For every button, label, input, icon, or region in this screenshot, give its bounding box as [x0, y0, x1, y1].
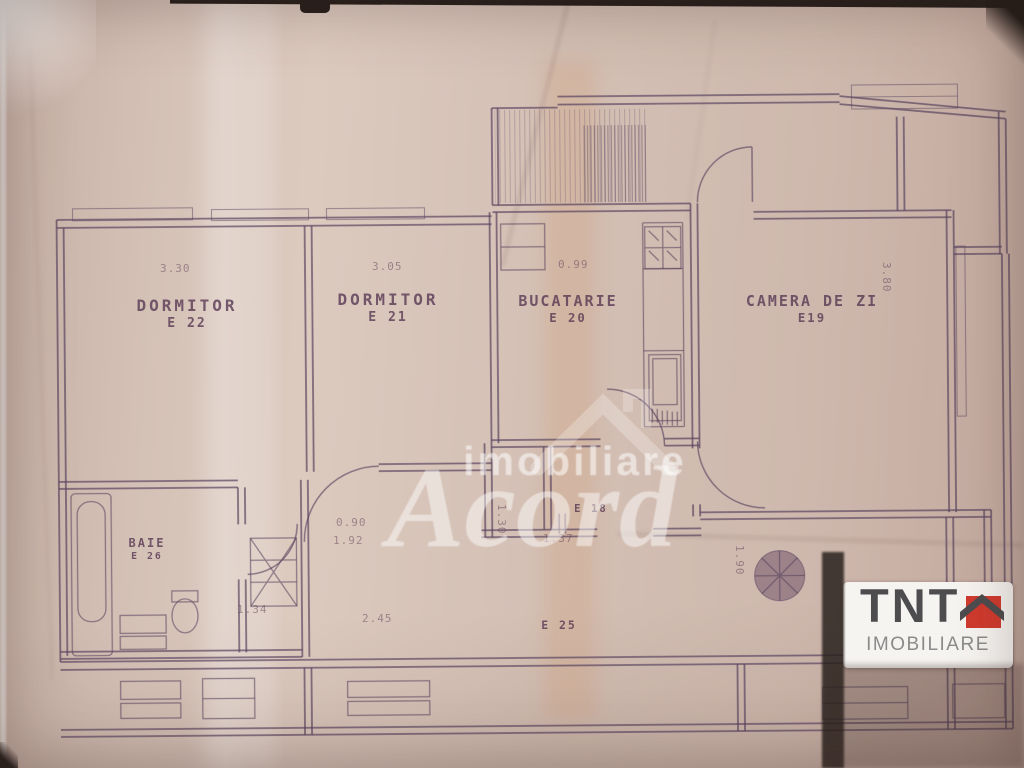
room-code: E 20: [498, 311, 638, 326]
room-code: E 26: [112, 551, 182, 563]
room-label-baie-e26: BAIE E 26: [112, 536, 182, 563]
room-code: E19: [722, 311, 902, 326]
photo-edge-left: [0, 0, 6, 768]
photo-shade-bottom-right: [826, 664, 1024, 768]
dimension-label: 3.05: [372, 260, 403, 273]
sink-cabinet-icon: [120, 615, 166, 633]
room-label-camera-de-zi-e19: CAMERA DE ZI E19: [722, 292, 902, 326]
balcony-hatch: [495, 109, 647, 203]
room-name: BUCATARIE: [518, 292, 617, 310]
room-name: DORMITOR: [136, 296, 237, 315]
watermark-acord-text: Acord: [312, 442, 752, 575]
logo-title: TNT: [860, 582, 960, 633]
photo-edge-notch: [300, 0, 330, 13]
room-name: CAMERA DE ZI: [746, 292, 878, 310]
dimension-label: 1.34: [237, 603, 268, 616]
room-code: E 25: [524, 618, 594, 632]
photo-corner-top-left: [0, 0, 96, 126]
dimension-label: 3.80: [880, 262, 893, 293]
tnt-imobiliare-logo: TNT IMOBILIARE: [843, 582, 1013, 668]
dimension-label: 0.99: [558, 258, 589, 271]
dimension-label: 2.45: [362, 612, 393, 625]
logo-house-icon: [959, 588, 1005, 630]
room-label-e25: E 25: [524, 618, 594, 632]
dimension-label: 3.30: [160, 262, 191, 275]
room-name: BAIE: [129, 536, 166, 550]
floor-plan-photo: DORMITOR E 22 DORMITOR E 21 BUCATARIE E …: [0, 0, 1024, 768]
photo-corner-bottom-left: [0, 742, 18, 768]
room-label-dormitor-e21: DORMITOR E 21: [318, 290, 458, 326]
logo-subtitle: IMOBILIARE: [843, 634, 1013, 656]
room-code: E 21: [318, 310, 458, 326]
room-label-dormitor-e22: DORMITOR E 22: [112, 296, 262, 332]
room-label-bucatarie-e20: BUCATARIE E 20: [498, 292, 638, 326]
room-name: DORMITOR: [337, 290, 438, 309]
room-code: E 22: [112, 316, 262, 332]
photo-corner-top-right: [986, 0, 1024, 70]
toilet-icon: [172, 599, 198, 633]
